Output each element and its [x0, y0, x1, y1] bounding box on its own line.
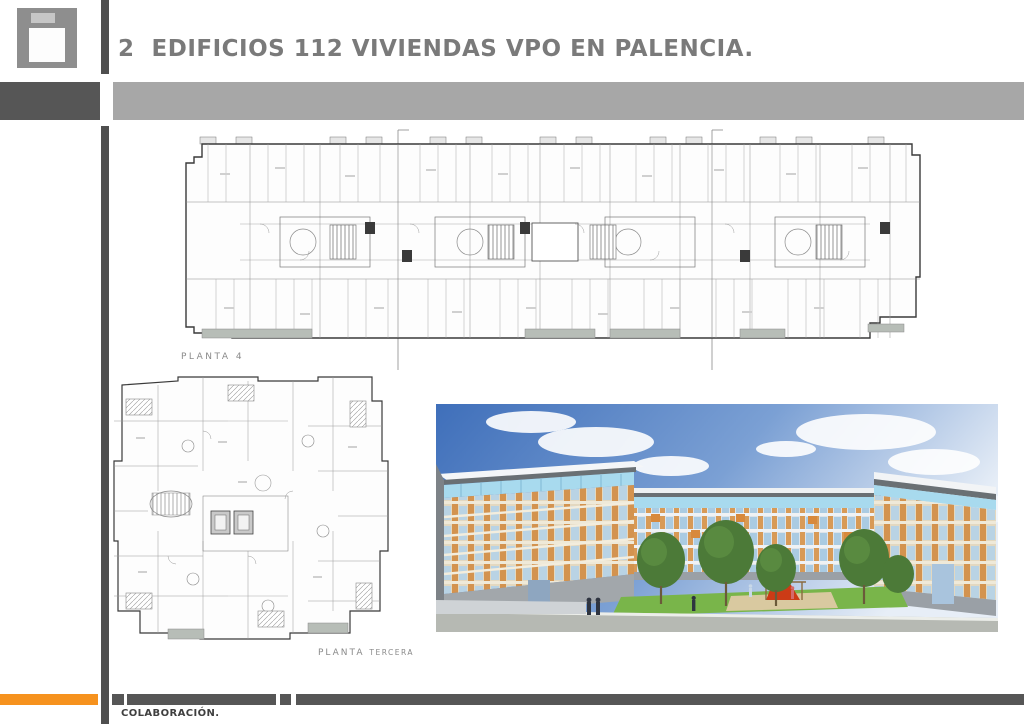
floor-plan-small-label-sub: TERCERA	[369, 648, 414, 657]
header-left-dark-block	[0, 82, 100, 120]
studio-logo	[17, 8, 77, 68]
logo-top-rectangle	[31, 13, 55, 23]
footer-bar-segment-3	[280, 694, 291, 705]
title-underline-band	[113, 82, 1024, 120]
footer-bar-segment-1	[112, 694, 124, 705]
floor-plan-small-drawing	[108, 371, 398, 647]
footer-bar-segment-2	[127, 694, 276, 705]
floor-plan-large-label: PLANTA 4	[181, 352, 244, 362]
page-title: 2 EDIFICIOS 112 VIVIENDAS VPO EN PALENCI…	[118, 36, 754, 62]
footer-orange-accent-bar	[0, 694, 98, 705]
building-render-image	[436, 404, 998, 632]
collaboration-label: COLABORACIÓN.	[121, 708, 219, 719]
vertical-accent-bar-top	[101, 0, 109, 74]
front-wall	[436, 600, 586, 614]
floor-plan-small-label-main: PLANTA	[318, 648, 365, 658]
logo-inner-square	[29, 28, 65, 62]
footer-bar-segment-4	[296, 694, 1024, 705]
floor-plan-large-drawing	[180, 127, 925, 374]
left-building	[436, 461, 644, 622]
floor-plan-small-label: PLANTA TERCERA	[318, 648, 414, 658]
